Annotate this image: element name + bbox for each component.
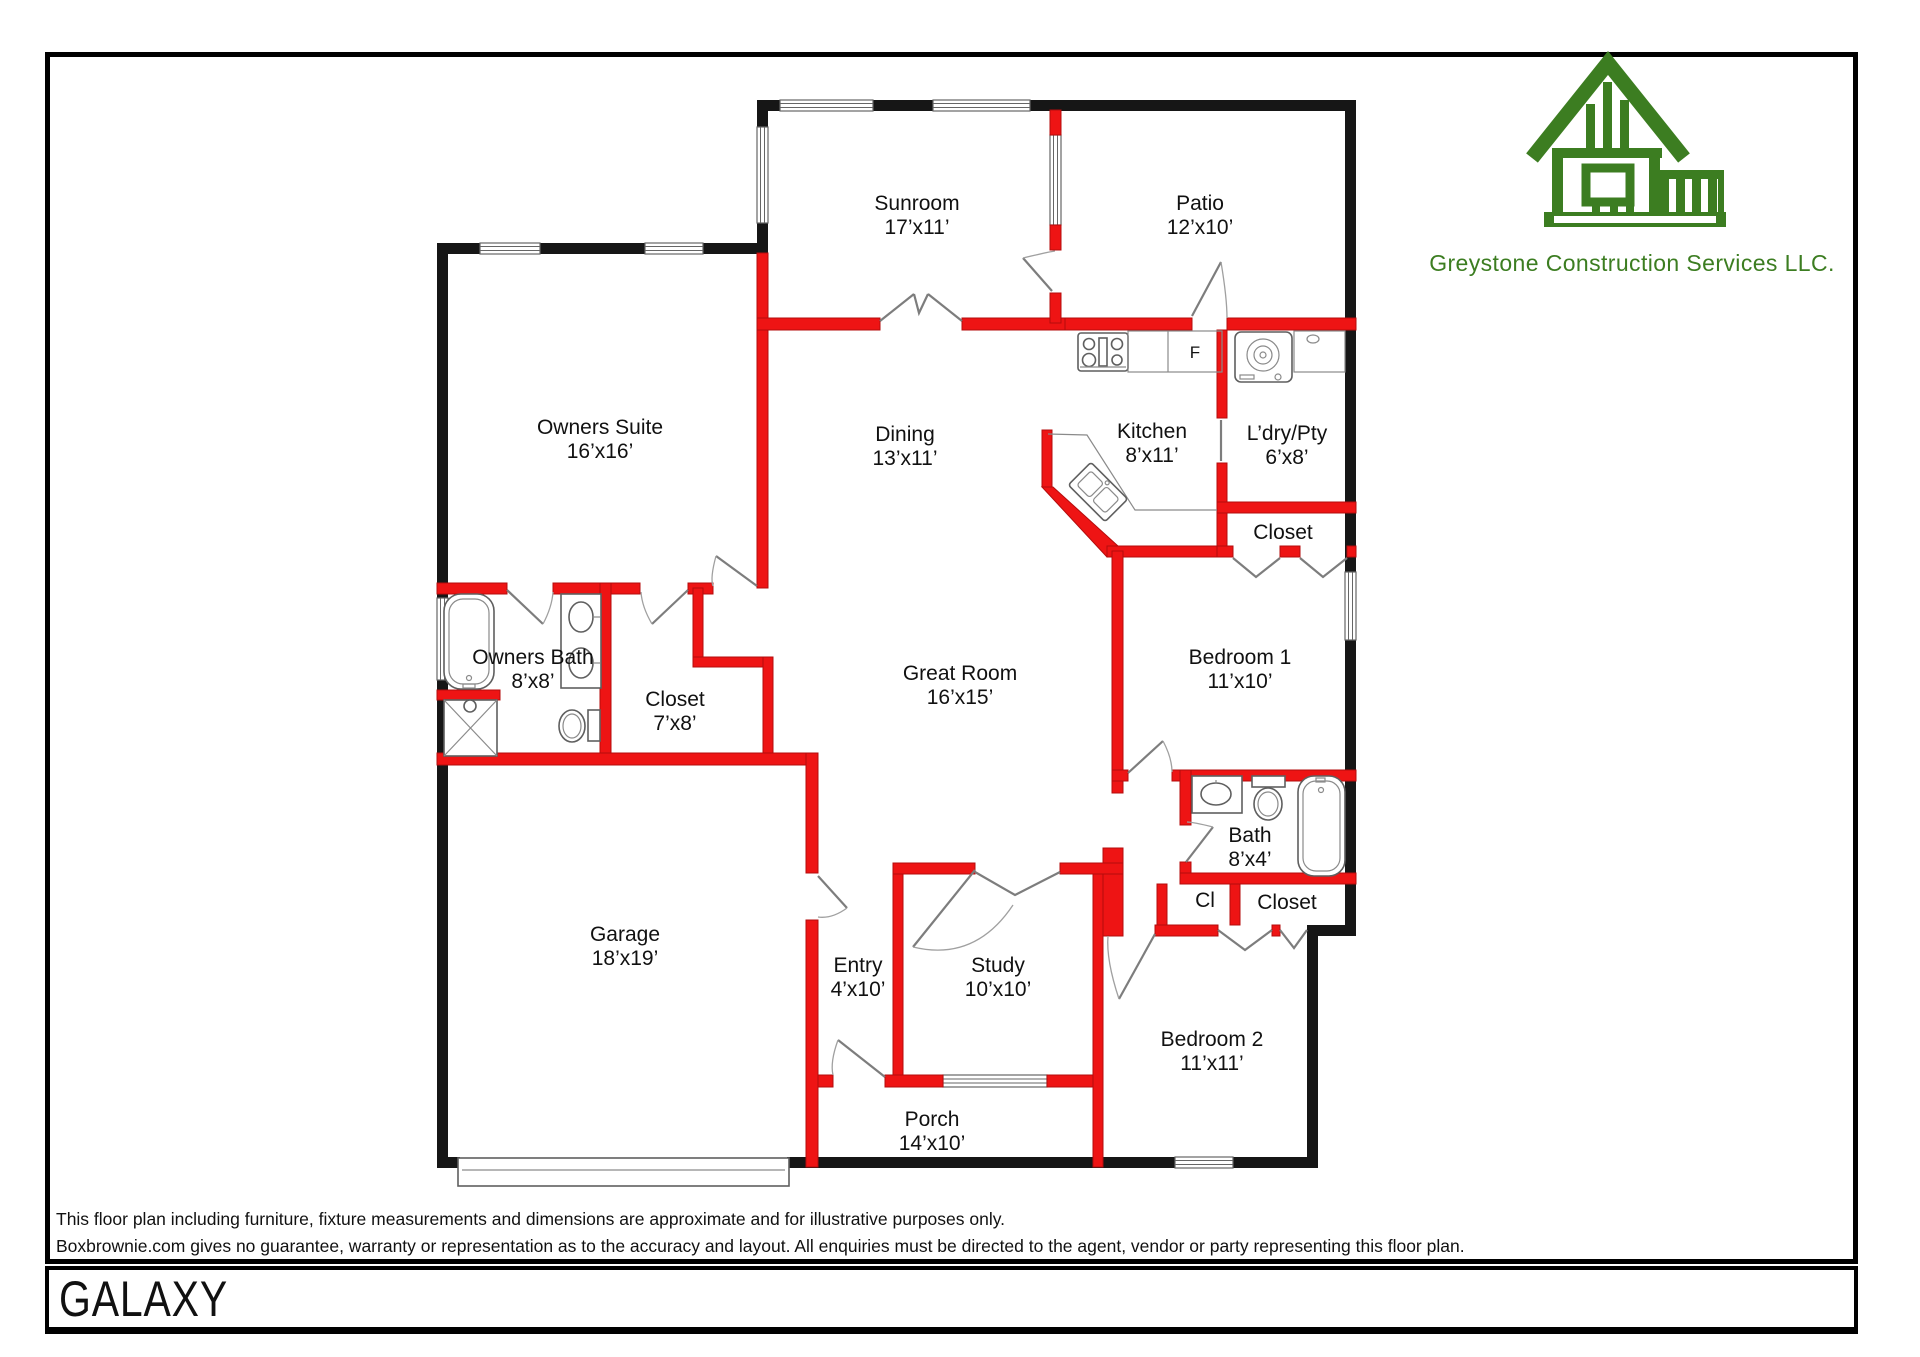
floor-plan-page: F bbox=[0, 0, 1920, 1357]
door-icon bbox=[1108, 934, 1155, 999]
door-icon bbox=[641, 590, 688, 624]
bifold-door-icon bbox=[1233, 558, 1280, 577]
window-icon bbox=[1175, 1157, 1233, 1168]
window-icon bbox=[943, 1075, 1047, 1087]
bifold-door-icon bbox=[1280, 930, 1307, 948]
window-icon bbox=[480, 243, 540, 254]
door-icon bbox=[1186, 822, 1213, 862]
door-icon bbox=[832, 1040, 885, 1077]
stove-icon bbox=[1078, 333, 1128, 371]
vanity-sink-icon bbox=[561, 594, 601, 688]
window-icon bbox=[1345, 572, 1356, 640]
toilet-icon bbox=[559, 710, 600, 742]
window-icon bbox=[757, 127, 768, 223]
window-icon bbox=[780, 100, 873, 111]
door-icon bbox=[1023, 251, 1055, 291]
bathtub-icon bbox=[444, 594, 494, 689]
door-icon bbox=[1192, 262, 1227, 318]
company-name: Greystone Construction Services LLC. bbox=[1429, 250, 1835, 277]
laundry-counter bbox=[1294, 331, 1345, 372]
floor-plan-drawing: F bbox=[0, 0, 1920, 1357]
door-icon bbox=[507, 590, 553, 624]
bathtub-icon bbox=[1298, 776, 1345, 876]
french-door-icon bbox=[880, 294, 962, 321]
door-icon bbox=[1128, 741, 1172, 773]
plan-title-bar: GALAXY bbox=[45, 1266, 1858, 1334]
door-icon bbox=[818, 876, 847, 917]
window-icon bbox=[645, 243, 703, 254]
plan-title: GALAXY bbox=[59, 1274, 228, 1324]
washer-icon bbox=[1235, 332, 1292, 382]
shower-icon bbox=[444, 700, 497, 756]
disclaimer-text: This floor plan including furniture, fix… bbox=[56, 1206, 1465, 1260]
disclaimer-line-1: This floor plan including furniture, fix… bbox=[56, 1206, 1465, 1233]
door-icon bbox=[712, 556, 757, 586]
garage-door-icon bbox=[458, 1158, 789, 1186]
refrigerator-icon: F bbox=[1128, 331, 1222, 372]
kitchen-counter bbox=[1048, 434, 1217, 510]
toilet-icon bbox=[1252, 776, 1285, 820]
bifold-door-icon bbox=[1300, 558, 1347, 577]
door-icon bbox=[913, 870, 1013, 950]
window-icon bbox=[933, 100, 1030, 111]
company-logo-icon bbox=[1532, 63, 1726, 227]
vanity-sink-icon bbox=[1192, 776, 1242, 813]
window-icon bbox=[1050, 135, 1061, 225]
bifold-door-icon bbox=[1218, 930, 1272, 950]
disclaimer-line-2: Boxbrownie.com gives no guarantee, warra… bbox=[56, 1233, 1465, 1260]
double-door-icon bbox=[975, 872, 1060, 895]
refrigerator-label: F bbox=[1190, 343, 1200, 362]
